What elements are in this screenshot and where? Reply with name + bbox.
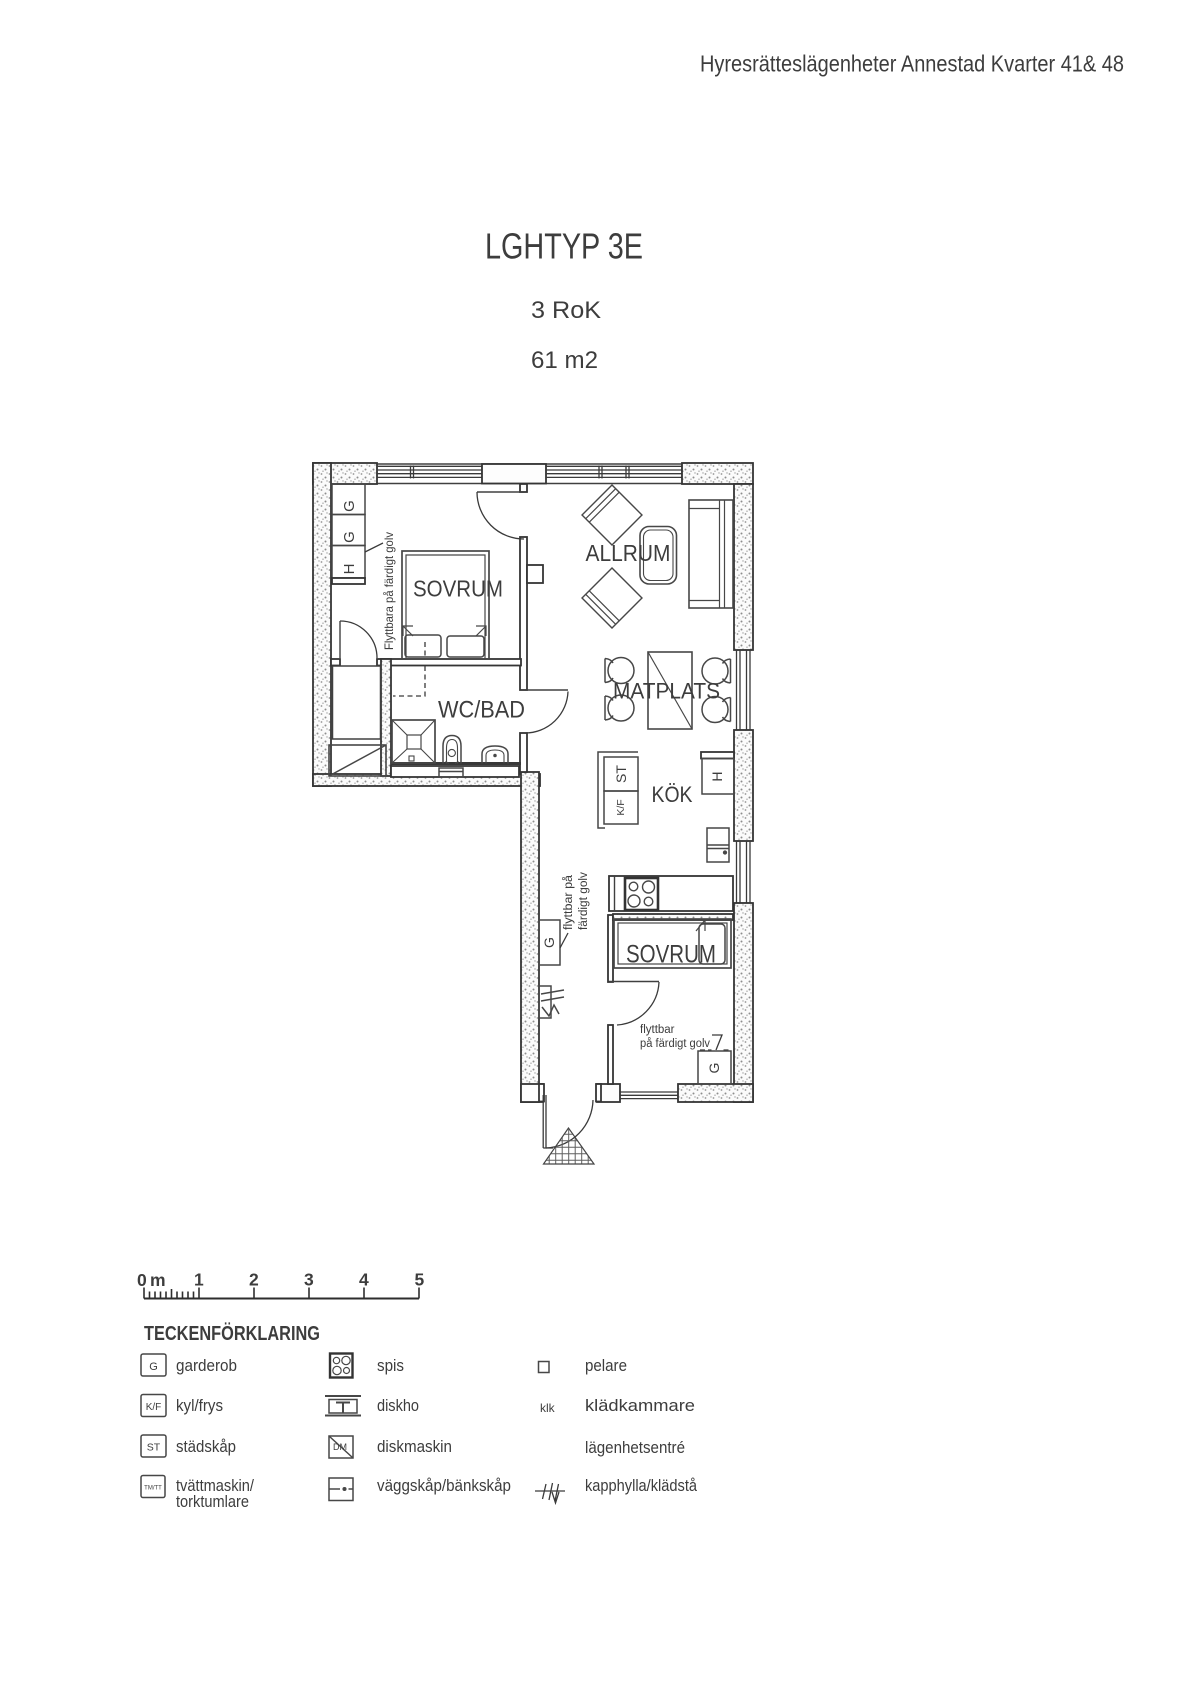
svg-text:Hyresrätteslägenheter Annestad: Hyresrätteslägenheter Annestad Kvarter 4… [700,51,1124,77]
svg-text:TM/TT: TM/TT [144,1486,162,1492]
svg-text:4: 4 [359,1270,369,1290]
svg-text:diskho: diskho [377,1396,419,1415]
svg-text:0: 0 [137,1270,147,1290]
svg-text:kyl/frys: kyl/frys [176,1396,223,1415]
svg-text:lägenhetsentré: lägenhetsentré [585,1438,685,1457]
svg-text:kapphylla/klädstå: kapphylla/klädstå [585,1476,697,1495]
svg-text:färdigt golv: färdigt golv [578,872,590,930]
svg-text:SOVRUM: SOVRUM [626,941,716,969]
svg-text:3 RoK: 3 RoK [531,297,601,324]
svg-text:MATPLATS: MATPLATS [613,679,720,704]
svg-text:DM: DM [333,1442,347,1452]
svg-text:K/F: K/F [146,1402,162,1413]
svg-text:ST: ST [147,1442,161,1454]
svg-text:flyttbar på: flyttbar på [563,874,575,930]
svg-text:5: 5 [415,1270,425,1290]
svg-text:m: m [150,1270,166,1290]
svg-text:G: G [341,531,358,543]
svg-text:2: 2 [249,1270,259,1290]
svg-text:WC/BAD: WC/BAD [438,697,525,724]
svg-text:G: G [706,1063,722,1074]
svg-text:diskmaskin: diskmaskin [377,1437,452,1456]
svg-text:H: H [709,771,725,781]
svg-text:på färdigt golv: på färdigt golv [640,1038,710,1050]
svg-text:städskåp: städskåp [176,1437,236,1456]
svg-text:G: G [541,937,557,948]
svg-text:väggskåp/bänkskåp: väggskåp/bänkskåp [377,1476,511,1495]
svg-text:G: G [149,1361,158,1373]
svg-text:ALLRUM: ALLRUM [586,540,671,566]
svg-text:H: H [341,564,358,575]
svg-text:3: 3 [304,1270,314,1290]
svg-text:Flyttbara på färdigt golv: Flyttbara på färdigt golv [382,532,396,650]
svg-text:spis: spis [377,1356,404,1375]
svg-text:KÖK: KÖK [652,782,693,807]
svg-text:ST: ST [613,765,629,783]
svg-text:1: 1 [194,1270,204,1290]
svg-text:torktumlare: torktumlare [176,1492,249,1511]
svg-text:flyttbar: flyttbar [640,1024,675,1036]
svg-text:G: G [341,500,358,512]
svg-text:LGHTYP 3E: LGHTYP 3E [485,226,643,267]
svg-text:klädkammare: klädkammare [585,1396,695,1415]
svg-text:klk: klk [540,1401,556,1415]
svg-text:garderob: garderob [176,1356,237,1375]
svg-text:pelare: pelare [585,1356,627,1375]
svg-text:61 m2: 61 m2 [531,347,598,374]
svg-text:TECKENFÖRKLARING: TECKENFÖRKLARING [144,1322,320,1345]
svg-text:SOVRUM: SOVRUM [413,576,503,602]
svg-text:K/F: K/F [615,799,627,815]
